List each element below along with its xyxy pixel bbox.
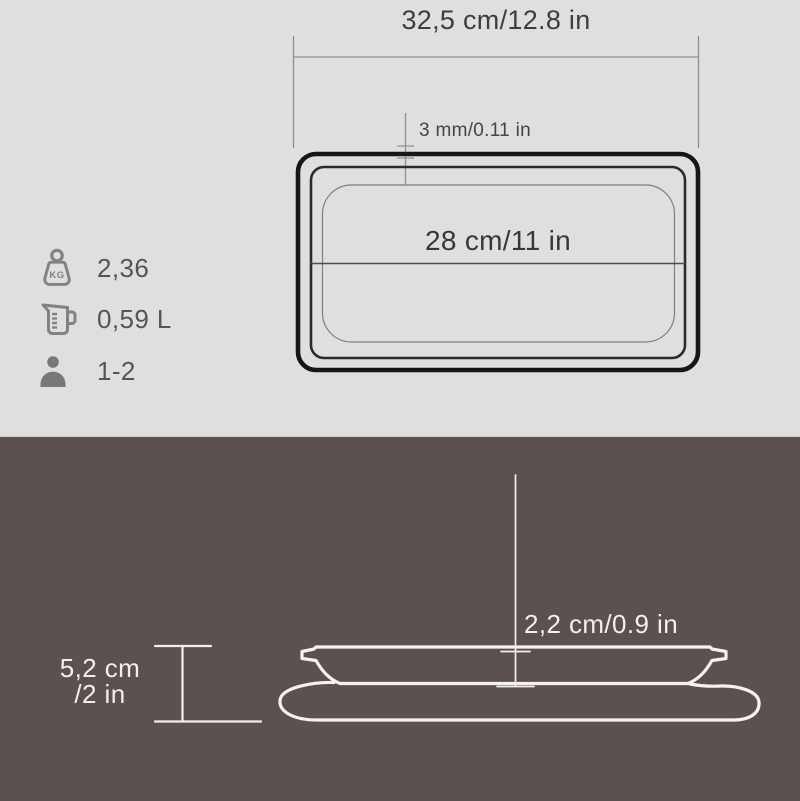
person-icon bbox=[38, 355, 82, 387]
spec-row-servings: 1-2 bbox=[38, 351, 136, 391]
height-label: 5,2 cm /2 in bbox=[40, 655, 160, 707]
pan-top-view-outline bbox=[298, 154, 698, 370]
weight-kg-icon: KG bbox=[38, 248, 82, 288]
top-view-section: 32,5 cm/12.8 in 3 mm/0.11 in 28 cm/11 in… bbox=[0, 0, 800, 436]
spec-row-weight: KG 2,36 bbox=[38, 248, 149, 288]
weight-value: 2,36 bbox=[97, 253, 149, 284]
servings-value: 1-2 bbox=[97, 356, 136, 387]
inner-width-label: 28 cm/11 in bbox=[298, 225, 698, 257]
pan-side-outline bbox=[280, 647, 759, 720]
depth-label: 2,2 cm/0.9 in bbox=[524, 609, 678, 640]
spec-row-volume: 0,59 L bbox=[38, 299, 172, 339]
height-label-line1: 5,2 cm bbox=[40, 655, 160, 681]
side-view-drawing bbox=[0, 437, 800, 801]
wall-thickness-label: 3 mm/0.11 in bbox=[419, 120, 531, 142]
height-dimension-lines bbox=[155, 646, 261, 722]
depth-dimension-lines bbox=[497, 475, 534, 687]
measuring-jug-icon bbox=[38, 301, 82, 337]
kg-badge-text: KG bbox=[49, 270, 64, 281]
side-view-section: 2,2 cm/0.9 in 5,2 cm /2 in bbox=[0, 436, 800, 801]
product-dimensions-diagram: 32,5 cm/12.8 in 3 mm/0.11 in 28 cm/11 in… bbox=[0, 0, 800, 800]
height-label-line2: /2 in bbox=[40, 681, 160, 707]
overall-width-label: 32,5 cm/12.8 in bbox=[293, 5, 699, 36]
volume-value: 0,59 L bbox=[97, 304, 172, 335]
wall-thickness-dimension-lines bbox=[397, 113, 414, 185]
